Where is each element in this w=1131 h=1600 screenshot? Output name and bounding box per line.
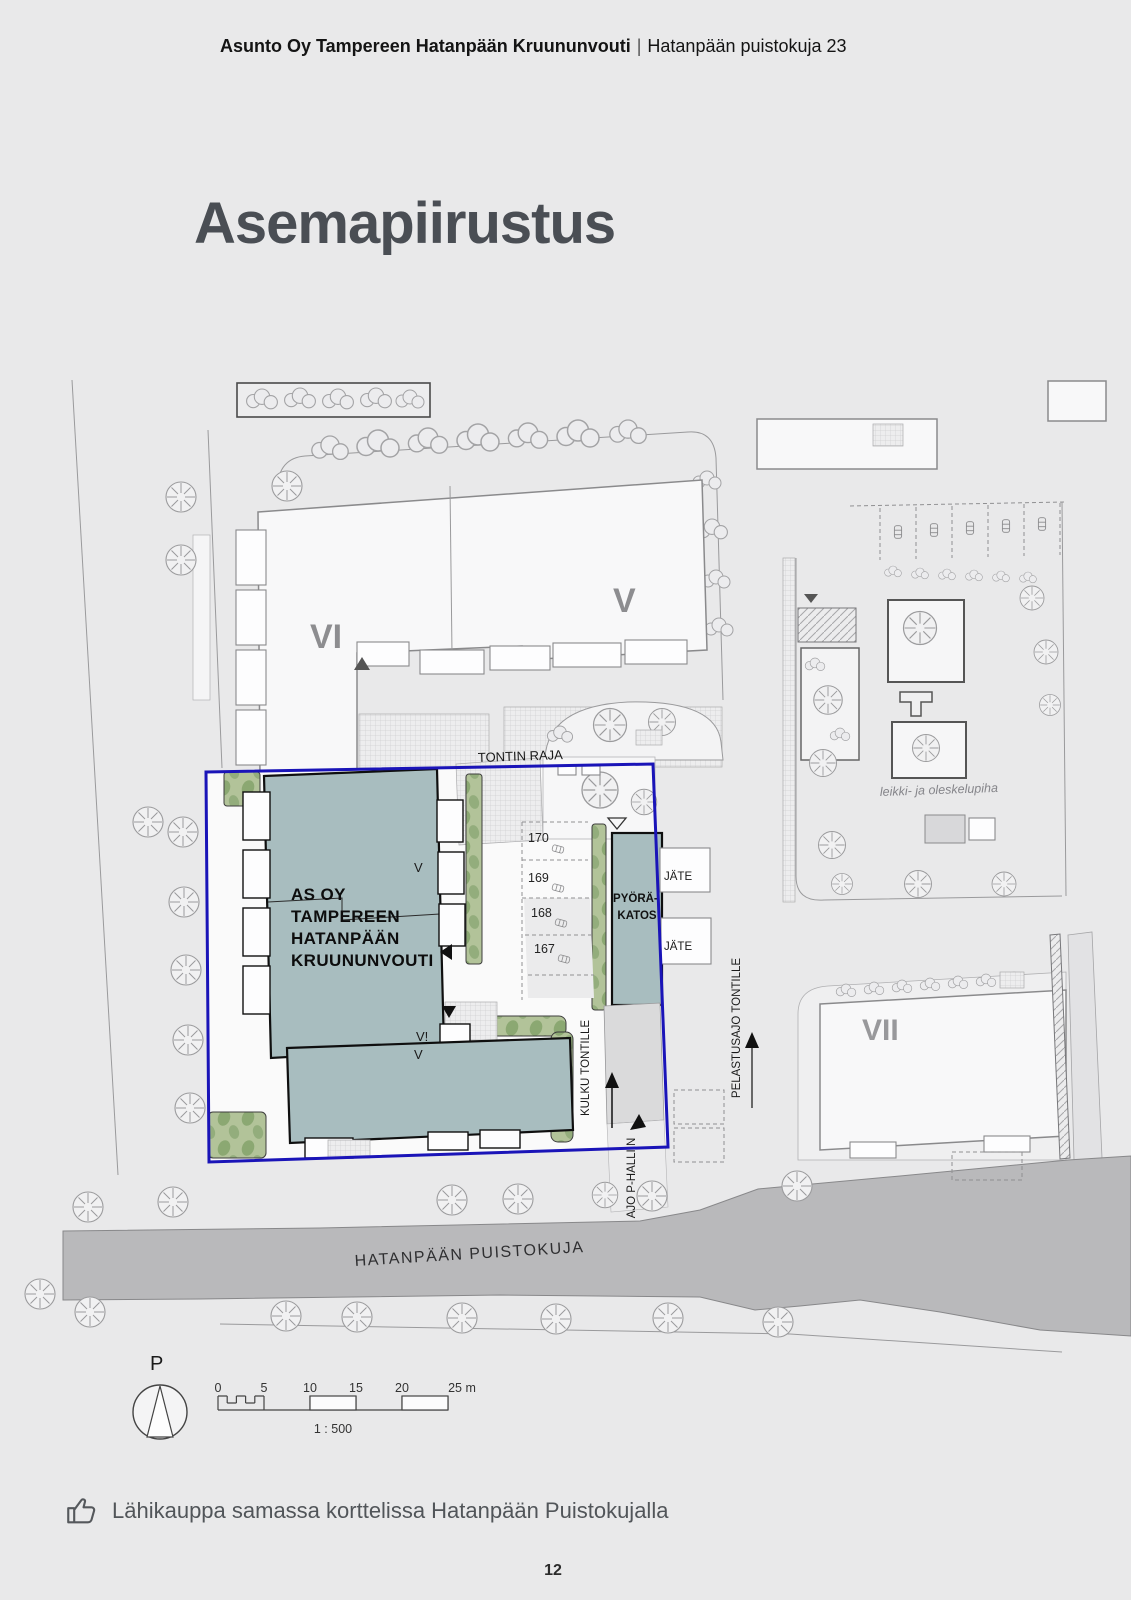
pergola: [900, 692, 932, 716]
waste-label-1: JÄTE: [664, 871, 692, 883]
scale-ratio-label: 1 : 500: [314, 1422, 352, 1436]
north-label: P: [150, 1353, 163, 1375]
access-label-pelastus: PELASTUSAJO TONTILLE: [731, 958, 743, 1099]
scale-tick-5: 5: [261, 1381, 268, 1395]
yard-tree: [272, 471, 302, 501]
green-strip: [466, 774, 482, 964]
project-name: Asunto Oy Tampereen Hatanpään Kruununvou…: [220, 36, 631, 56]
plot-boundary-label: TONTIN RAJA: [478, 747, 564, 765]
main-building-label-line2: TAMPEREEN: [291, 907, 400, 926]
green-strip: [208, 1112, 266, 1158]
page-header: Asunto Oy Tampereen Hatanpään Kruununvou…: [220, 36, 847, 57]
bike-shelter-label-line2: KATOS: [617, 910, 657, 922]
yard-bench: [969, 818, 995, 840]
parking-number-169: 169: [528, 871, 549, 885]
scale-bar: 0 5 10 15 20 25 m 1 : 500: [215, 1381, 476, 1436]
paved-yard: [359, 714, 489, 768]
waste-label-2: JÄTE: [664, 941, 692, 953]
yard-label: leikki- ja oleskelupiha: [880, 781, 999, 799]
green-strip: [592, 824, 606, 1010]
neighbor-buildings-north: [757, 381, 1106, 469]
path-band: [783, 558, 795, 902]
parking-number-168: 168: [531, 906, 552, 920]
storey-label-top: V: [414, 860, 423, 875]
yard-table: [636, 730, 662, 745]
vegetation-strip-north: [237, 383, 430, 417]
access-label-kulku: KULKU TONTILLE: [580, 1020, 592, 1116]
north-arrow: P: [133, 1353, 187, 1439]
header-separator: |: [631, 36, 648, 56]
scale-tick-10: 10: [303, 1381, 317, 1395]
neighbor-block-east: leikki- ja oleskelupiha: [783, 502, 1066, 902]
bike-shelter: PYÖRÄ- KATOS: [608, 818, 662, 1005]
scale-tick-15: 15: [349, 1381, 363, 1395]
parking-boundary-dashed: [850, 502, 1065, 506]
main-building-label-line4: KRUUNUNVOUTI: [291, 951, 434, 970]
parking-number-170: 170: [528, 831, 549, 845]
thumbs-up-icon: [64, 1494, 98, 1528]
parking-stalls-north: [880, 503, 1060, 560]
page-title: Asemapiirustus: [194, 190, 615, 257]
project-address: Hatanpään puistokuja 23: [647, 36, 846, 56]
road: HATANPÄÄN PUISTOKUJA: [25, 1152, 1131, 1352]
left-street: [72, 380, 222, 1175]
rescue-route: [745, 1032, 759, 1108]
block-edge-line: [1062, 502, 1066, 896]
scale-tick-25: 25 m: [448, 1381, 476, 1395]
main-building-label-line3: HATANPÄÄN: [291, 929, 400, 948]
scale-tick-0: 0: [215, 1381, 222, 1395]
ramp-arrow-icon: [804, 594, 818, 603]
block-vii-label: VII: [862, 1014, 899, 1047]
vii-entrance: [850, 1142, 896, 1158]
waste-sheds: JÄTE JÄTE: [660, 848, 711, 964]
block-v-label: V: [613, 582, 636, 620]
street-edge-line: [72, 380, 118, 1175]
storey-label-bottom: V: [414, 1047, 423, 1062]
yard-shed: [925, 815, 965, 843]
page-number: 12: [0, 1562, 1106, 1580]
direction-arrow-icon: [745, 1032, 759, 1048]
shrub-row: [885, 566, 1037, 583]
block-vi-label: VI: [310, 618, 342, 656]
road-surface: [63, 1156, 1131, 1336]
footer-note: Lähikauppa samassa korttelissa Hatanpään…: [64, 1494, 668, 1528]
building-vii-footprint: [820, 990, 1066, 1150]
driveway: [592, 1003, 724, 1212]
main-building-lower: [287, 1038, 573, 1143]
parking-number-167: 167: [534, 942, 555, 956]
storey-label-left: V!: [416, 1029, 428, 1044]
vii-entrance: [984, 1136, 1030, 1152]
main-building-label-line1: AS OY: [291, 885, 346, 904]
bike-shelter-label-line1: PYÖRÄ-: [613, 892, 658, 905]
ramp: [798, 608, 856, 642]
footer-note-text: Lähikauppa samassa korttelissa Hatanpään…: [112, 1498, 668, 1524]
building-vii-block: VII: [798, 972, 1066, 1160]
plot-area: V AS OY TAMPEREEN HATANPÄÄN KRUUNUNVOUTI…: [206, 702, 759, 1218]
scale-tick-20: 20: [395, 1381, 409, 1395]
